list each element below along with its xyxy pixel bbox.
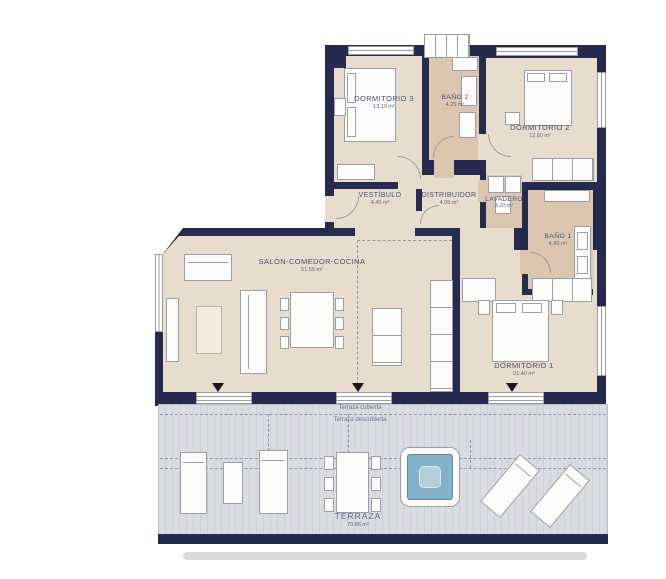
room-area: 3.10 m² xyxy=(485,203,523,209)
nightstand xyxy=(551,300,563,315)
room-label-distribuidor: DISTRIBUIDOR 4.05 m² xyxy=(422,192,477,206)
dining-table xyxy=(290,292,334,348)
wardrobe xyxy=(337,164,375,180)
room-label-salon: SALÓN-COMEDOR-COCINA 51.55 m² xyxy=(259,258,366,273)
chair xyxy=(324,498,334,512)
window-dormitorio-1-right xyxy=(597,306,606,376)
wardrobe xyxy=(532,158,594,181)
toilet xyxy=(577,232,588,250)
chair xyxy=(324,477,334,491)
chair xyxy=(280,298,289,311)
room-name: SALÓN-COMEDOR-COCINA xyxy=(259,258,366,267)
window-dormitorio-3 xyxy=(348,46,414,55)
pillow xyxy=(549,73,567,82)
room-area: 4.45 m² xyxy=(359,200,402,206)
chair xyxy=(335,298,344,311)
chair xyxy=(371,498,381,512)
nightstand xyxy=(334,98,346,116)
room-area: 12.80 m² xyxy=(510,133,570,139)
sun-lounger xyxy=(180,452,207,514)
pillow xyxy=(522,303,542,313)
coffee-table xyxy=(196,306,222,354)
pillow xyxy=(527,73,545,82)
room-label-dormitorio-2: DORMITORIO 2 12.80 m² xyxy=(510,124,570,139)
terrace-step-bar xyxy=(183,552,587,560)
sun-lounger xyxy=(259,450,288,514)
side-table xyxy=(223,462,243,504)
terrace-dashed-line xyxy=(160,458,606,459)
terrace-edge-wall xyxy=(158,534,608,544)
room-label-bano-1: BAÑO 1 4.90 m² xyxy=(544,233,571,247)
sofa xyxy=(184,254,232,281)
chair xyxy=(335,317,344,330)
wardrobe xyxy=(462,278,496,302)
room-label-bano-2: BAÑO 2 4.25 m² xyxy=(441,94,468,108)
door-gap-entrance xyxy=(325,196,336,222)
uncovered-text: Terraza descubierta xyxy=(334,417,387,424)
chair xyxy=(371,456,381,470)
room-area: 21.40 m² xyxy=(494,371,554,377)
bidet xyxy=(577,256,588,274)
room-label-vestibulo: VESTÍBULO 4.45 m² xyxy=(359,192,402,206)
terrace-covered-label: Terraza cubierta xyxy=(338,405,381,412)
outdoor-table xyxy=(336,452,369,513)
kitchen-units xyxy=(430,280,453,392)
exit-arrow-icon xyxy=(506,383,518,392)
chair xyxy=(335,336,344,349)
room-name: LAVADERO xyxy=(485,196,523,203)
window-dormitorio-2-top xyxy=(496,47,578,56)
wardrobe xyxy=(532,278,592,302)
room-area: 51.55 m² xyxy=(259,267,366,273)
pillow xyxy=(496,303,516,313)
room-name: DORMITORIO 3 xyxy=(354,95,414,104)
slider-salon-left xyxy=(196,392,252,404)
room-name: BAÑO 1 xyxy=(544,233,571,241)
door-gap-bano-1 xyxy=(520,250,530,274)
chair xyxy=(324,456,334,470)
room-name: VESTÍBULO xyxy=(359,192,402,200)
kitchen-boundary-dashed xyxy=(357,240,452,241)
terrace-covered-line-dashed xyxy=(160,414,606,415)
pillow xyxy=(347,107,356,137)
door-gap-bano-2 xyxy=(434,158,454,178)
terrace-dashed-line xyxy=(470,440,471,468)
room-label-lavadero: LAVADERO 3.10 m² xyxy=(485,196,523,210)
door-gap-dormitorio-2 xyxy=(478,134,488,160)
vanity xyxy=(544,190,590,202)
chair xyxy=(280,317,289,330)
room-label-dormitorio-3: DORMITORIO 3 13.10 m² xyxy=(354,95,414,110)
entry-steps xyxy=(424,34,470,58)
chair xyxy=(371,477,381,491)
slider-salon-right xyxy=(336,392,392,404)
room-name: BAÑO 2 xyxy=(441,94,468,102)
window-dormitorio-2-right xyxy=(597,72,606,128)
tv-unit xyxy=(166,298,179,362)
exit-arrow-icon xyxy=(352,383,364,392)
kitchen-island xyxy=(372,308,402,366)
slider-dormitorio-1 xyxy=(488,392,544,404)
toilet xyxy=(459,112,476,138)
opening-vestibulo-salon xyxy=(355,222,415,240)
room-name: DORMITORIO 2 xyxy=(510,124,570,133)
floor-plan: DORMITORIO 3 13.10 m² BAÑO 2 4.25 m² DOR… xyxy=(0,0,666,579)
room-label-terraza: TERRAZA 70.86 m² xyxy=(335,512,382,528)
corridor-dormitorio-1 xyxy=(460,228,514,254)
pool-step xyxy=(419,466,441,488)
room-label-dormitorio-1: DORMITORIO 1 21.40 m² xyxy=(494,362,554,377)
washer xyxy=(488,176,504,193)
room-name: TERRAZA xyxy=(335,512,382,522)
nightstand xyxy=(478,300,490,315)
room-name: DORMITORIO 1 xyxy=(494,362,554,371)
window-salon-left xyxy=(155,254,163,332)
room-area: 13.10 m² xyxy=(354,104,414,110)
wall-jog xyxy=(334,56,346,68)
room-area: 4.90 m² xyxy=(544,241,571,247)
room-area: 4.05 m² xyxy=(422,200,477,206)
sofa xyxy=(240,290,267,374)
dryer xyxy=(505,176,521,193)
covered-text: Terraza cubierta xyxy=(338,405,381,412)
chair xyxy=(280,336,289,349)
room-name: DISTRIBUIDOR xyxy=(422,192,477,200)
room-area: 70.86 m² xyxy=(335,522,382,528)
room-area: 4.25 m² xyxy=(441,102,468,108)
exit-arrow-icon xyxy=(212,383,224,392)
bathtub xyxy=(452,57,478,71)
terrace-uncovered-label: Terraza descubierta xyxy=(334,417,387,424)
